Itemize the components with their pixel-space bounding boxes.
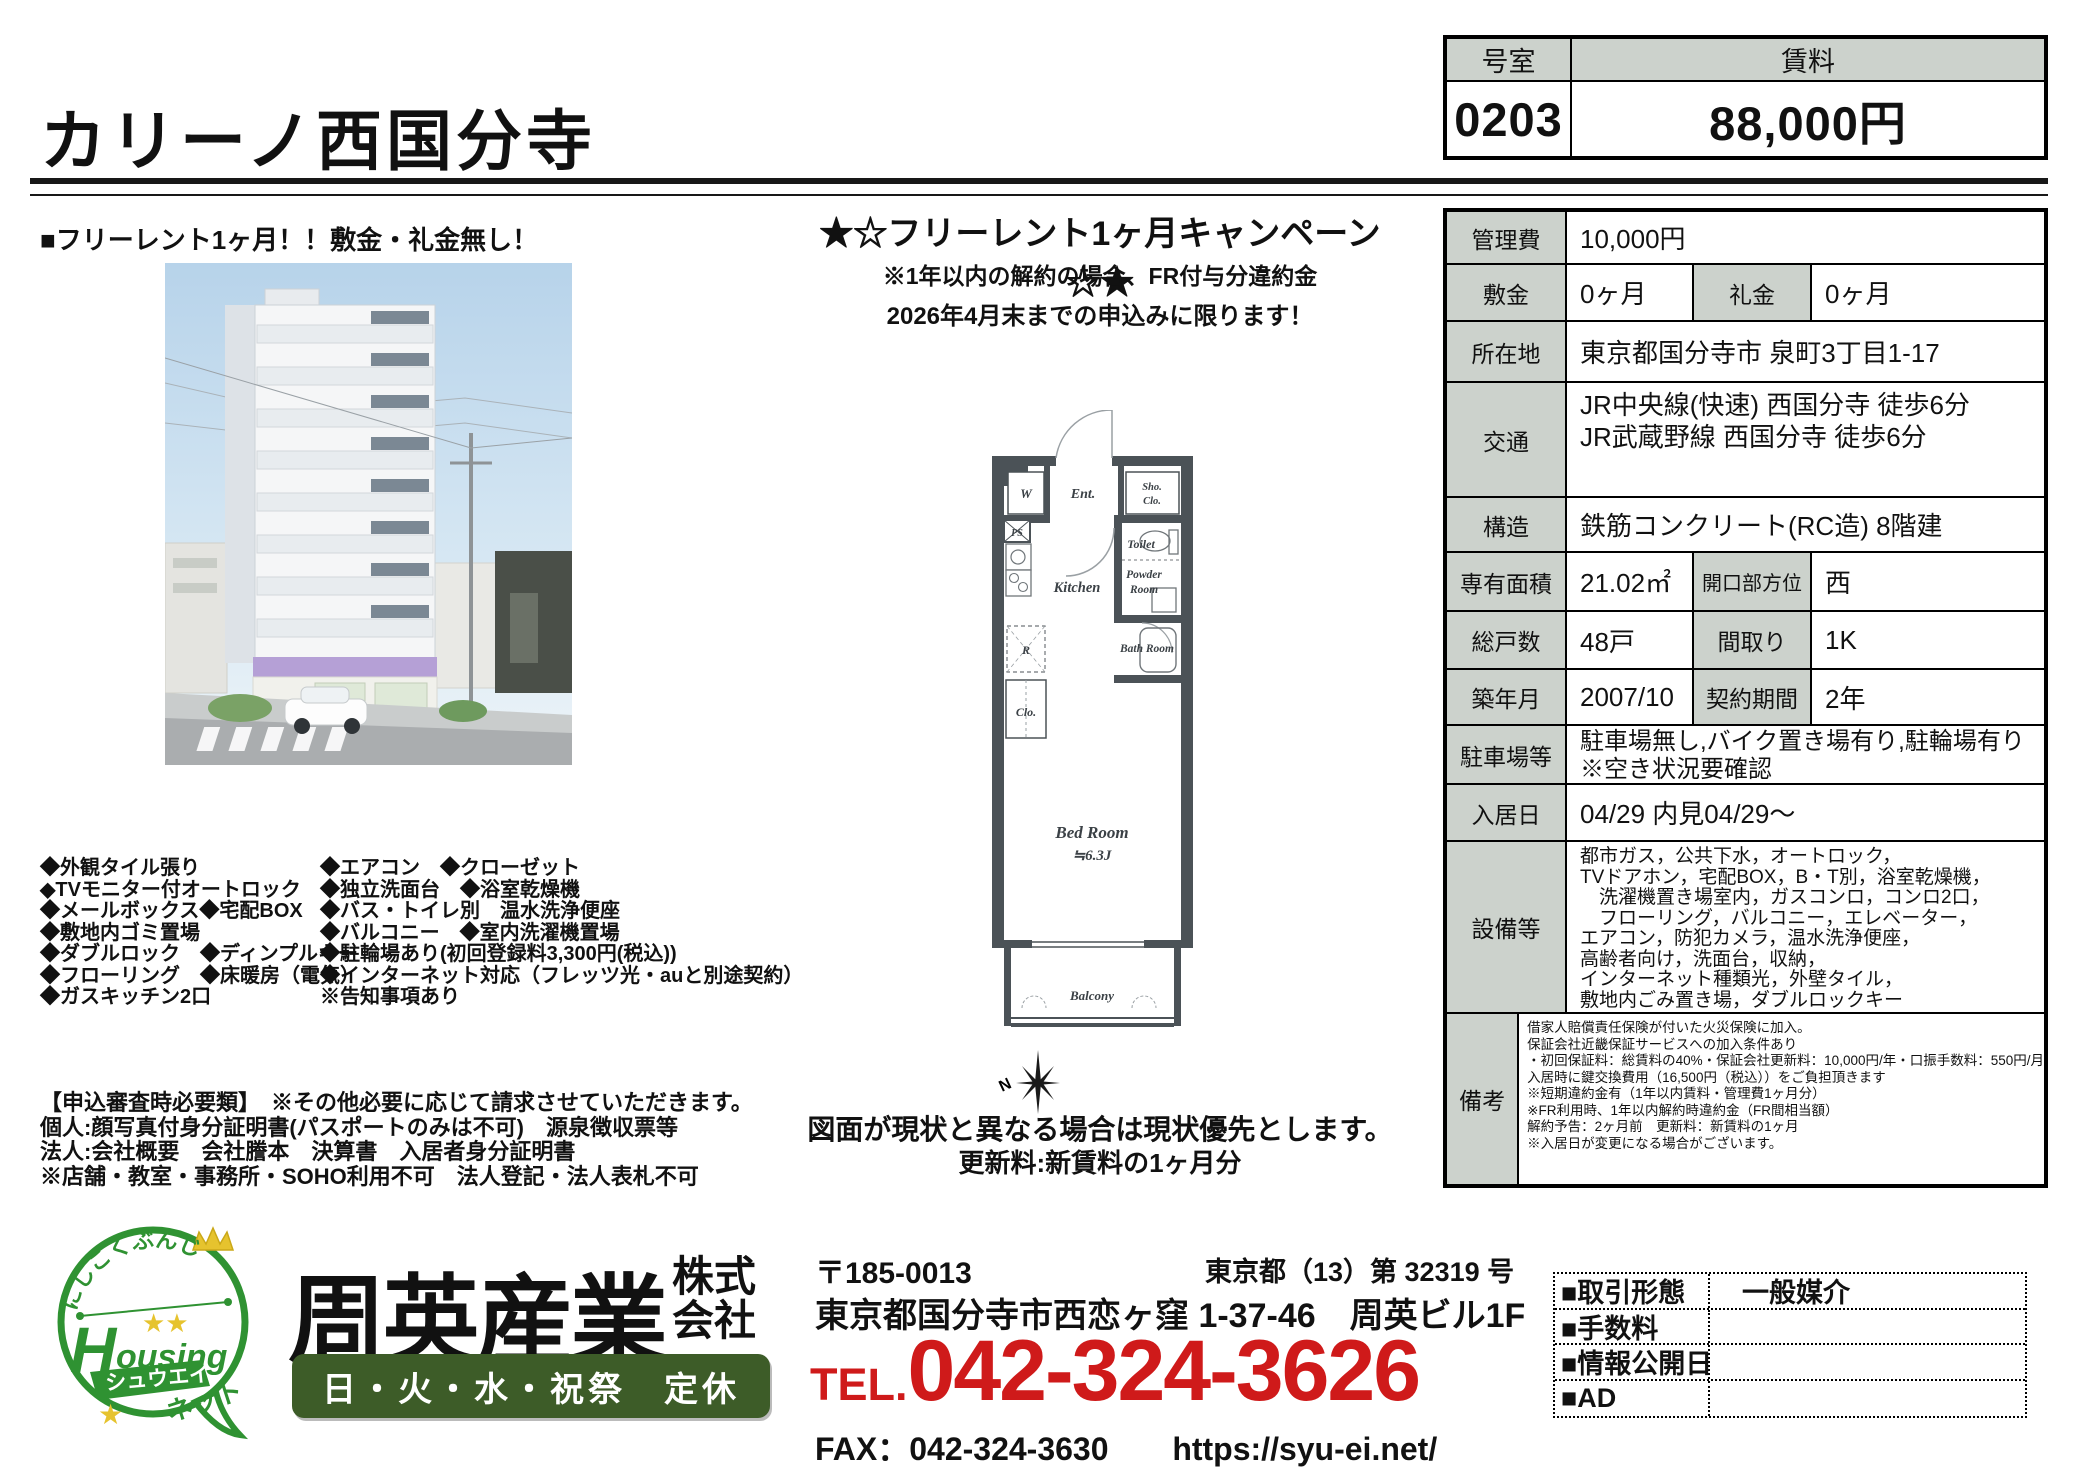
deposit-value: 0ヶ月 [1567,265,1692,320]
row-built-contract: 築年月 2007/10 契約期間 2年 [1447,670,2044,726]
location-label: 所在地 [1447,322,1567,381]
commission-value [1710,1310,2025,1344]
facing-value: 西 [1812,553,2044,610]
plan-label-shoclo-2: Clo. [1143,496,1161,507]
key-money-label: 礼金 [1692,265,1812,320]
remarks-value: 借家人賠償責任保険が付いた火災保険に加入。 保証会社近畿保証サービスへの加入条件… [1519,1014,2044,1184]
feature-item: ◆外観タイル張り [40,858,360,880]
feature-list-col2: ◆エアコン ◆クローゼット ◆独立洗面台 ◆浴室乾燥機 ◆バス・トイレ別 温水洗… [320,858,803,1009]
campaign-note-1: ※1年以内の解約の場合、FR付与分違約金 [790,257,1410,291]
fax-row: FAX：042-324-3630 https://syu-ei.net/ [815,1424,1437,1470]
plan-label-shoclo-1: Sho. [1142,482,1162,493]
closed-days-banner: 日・火・水・祝祭 定休 [292,1354,770,1418]
tel-label: TEL. [810,1359,908,1411]
equipment-label: 設備等 [1447,842,1567,1012]
equipment-line: 敷地内ごみ置き場，ダブルロックキー [1580,991,2044,1012]
application-notes: 【申込審査時必要類】 ※その他必要に応じて請求させていただきます。 個人:顔写真… [40,1091,753,1189]
ad-value [1710,1381,2025,1417]
transit-value: JR中央線(快速) 西国分寺 徒歩6分 JR武蔵野線 西国分寺 徒歩6分 [1567,383,2044,496]
plan-label-size: ≒6.3J [1073,848,1112,864]
deal-row-commission: ■手数料 [1555,1310,2025,1346]
rent-value: 88,000円 [1572,82,2044,156]
feature-item: ◆TVモニター付オートロック [40,880,360,902]
price-table-values: 0203 88,000円 [1447,82,2044,156]
phone-row: TEL. 042-324-3626 [810,1322,1419,1421]
remarks-line: ※短期違約金有（1年以内賃料・管理費1ヶ月分） [1527,1086,2044,1103]
license-number: 東京都（13）第 32319 号 [1205,1250,1514,1289]
remarks-line: 借家人賠償責任保険が付いた火災保険に加入。 [1527,1020,2044,1037]
row-structure: 構造 鉄筋コンクリート(RC造) 8階建 [1447,498,2044,553]
compass-n-label: N [997,1075,1015,1095]
renewal-fee-note: 更新料:新賃料の1ヶ月分 [780,1143,1420,1180]
parking-label: 駐車場等 [1447,726,1567,783]
feature-item: ◆メールボックス◆宅配BOX [40,901,360,923]
price-table-header: 号室 賃料 [1447,39,2044,82]
application-note-line: ※店舗・教室・事務所・SOHO利用不可 法人登記・法人表札不可 [40,1165,753,1190]
move-in-value: 04/29 内見04/29～ [1567,785,2044,840]
deal-row-publish-date: ■情報公開日 [1555,1345,2025,1381]
page-title: カリーノ西国分寺 [40,88,596,184]
row-location: 所在地 東京都国分寺市 泉町3丁目1-17 [1447,322,2044,383]
company-suffix: 株式 会社 [672,1255,756,1343]
plan-label-r: R [1021,643,1030,657]
feature-item: ◆駐輪場あり(初回登録料3,300円(税込)) [320,944,803,966]
structure-value: 鉄筋コンクリート(RC造) 8階建 [1567,498,2044,551]
plan-label-clo: Clo. [1016,705,1036,719]
remarks-line: 解約予告：2ヶ月前 更新料：新賃料の1ヶ月 [1527,1119,2044,1136]
title-divider [30,178,2048,196]
equipment-line: 洗濯機置き場室内，ガスコンロ，コンロ2口， [1580,888,2044,909]
row-deposit-key-money: 敷金 0ヶ月 礼金 0ヶ月 [1447,265,2044,322]
remarks-line: 入居時に鍵交換費用（16,500円（税込））をご負担頂きます [1527,1070,2044,1087]
parking-value: 駐車場無し,バイク置き場有り,駐輪場有り ※空き状況要確認 [1567,726,2044,783]
feature-item: ◆ダブルロック ◆ディンプルキー [40,944,360,966]
facing-label: 開口部方位 [1692,553,1812,610]
deal-info-table: ■取引形態 一般媒介 ■手数料 ■情報公開日 ■AD [1553,1272,2027,1418]
deal-row-ad: ■AD [1555,1381,2025,1417]
application-note-line: 個人:顔写真付身分証明書(パスポートのみは不可) 源泉徴収票等 [40,1116,753,1141]
remarks-line: 保証会社近畿保証サービスへの加入条件あり [1527,1037,2044,1054]
feature-item: ※告知事項あり [320,987,803,1009]
plan-label-ent: Ent. [1070,487,1096,502]
row-transit: 交通 JR中央線(快速) 西国分寺 徒歩6分 JR武蔵野線 西国分寺 徒歩6分 [1447,383,2044,498]
transaction-type-value: 一般媒介 [1710,1274,2025,1308]
feature-item: ◆ガスキッチン2口 [40,987,360,1009]
built-date-label: 築年月 [1447,670,1567,724]
plan-label-bath: Bath Room [1119,643,1174,655]
campaign-note-2: 2026年4月末までの申込みに限ります！ [790,296,1410,331]
equipment-line: 都市ガス，公共下水，オートロック， [1580,847,2044,868]
price-table: 号室 賃料 0203 88,000円 [1443,35,2048,160]
website-url: https://syu-ei.net/ [1172,1431,1437,1467]
company-suffix-line-2: 会社 [672,1299,756,1343]
management-fee-label: 管理費 [1447,212,1567,263]
room-number-value: 0203 [1447,82,1572,156]
layout-label: 間取り [1692,612,1812,668]
total-units-label: 総戸数 [1447,612,1567,668]
feature-item: ◆エアコン ◆クローゼット [320,858,803,880]
row-area-facing: 専有面積 21.02㎡ 開口部方位 西 [1447,553,2044,612]
structure-label: 構造 [1447,498,1567,551]
plan-disclaimer: 図面が現状と異なる場合は現状優先とします。 [780,1108,1420,1148]
fax-number: FAX：042-324-3630 [815,1431,1109,1467]
layout-value: 1K [1812,612,2044,668]
publish-date-label: ■情報公開日 [1555,1345,1710,1379]
management-fee-value: 10,000円 [1567,212,2044,263]
equipment-line: インターネット種類光，外壁タイル， [1580,970,2044,991]
plan-label-powder-2: Room [1129,584,1158,596]
row-management-fee: 管理費 10,000円 [1447,212,2044,265]
tel-number: 042-324-3626 [908,1322,1420,1421]
row-move-in: 入居日 04/29 内見04/29～ [1447,785,2044,842]
publish-date-value [1710,1345,2025,1379]
location-value: 東京都国分寺市 泉町3丁目1-17 [1567,322,2044,381]
row-remarks: 備考 借家人賠償責任保険が付いた火災保険に加入。 保証会社近畿保証サービスへの加… [1447,1014,2044,1184]
rent-header: 賃料 [1572,39,2044,80]
remarks-line: ・初回保証料：総賃料の40%・保証会社更新料：10,000円/年・口振手数料：5… [1527,1053,2044,1070]
plan-label-w: W [1020,486,1033,501]
equipment-line: エアコン，防犯カメラ，温水洗浄便座， [1580,929,2044,950]
logo-stars-top: ★★ [142,1308,189,1338]
transit-line-2: JR武蔵野線 西国分寺 徒歩6分 [1580,421,2044,453]
feature-item: ◆フローリング ◆床暖房（電気） [40,966,360,988]
built-date-value: 2007/10 [1567,670,1692,724]
ad-label: ■AD [1555,1381,1710,1417]
transit-label: 交通 [1447,383,1567,496]
property-details-table: 管理費 10,000円 敷金 0ヶ月 礼金 0ヶ月 所在地 東京都国分寺市 泉町… [1443,208,2048,1188]
room-number-header: 号室 [1447,39,1572,80]
contract-term-label: 契約期間 [1692,670,1812,724]
equipment-line: TVドアホン，宅配BOX，B・T別，浴室乾燥機， [1580,868,2044,889]
remarks-line: ※FR利用時、1年以内解約時違約金（FR間相当額） [1527,1103,2044,1120]
key-money-value: 0ヶ月 [1812,265,2044,320]
remarks-line: ※入居日が変更になる場合がございます。 [1527,1136,2044,1153]
plan-label-ps: PS [1011,528,1023,539]
transit-line-1: JR中央線(快速) 西国分寺 徒歩6分 [1580,389,2044,421]
building-photo-illustration [165,263,572,765]
feature-list-col1: ◆外観タイル張り ◆TVモニター付オートロック ◆メールボックス◆宅配BOX ◆… [40,858,360,1009]
feature-item: ◆バス・トイレ別 温水洗浄便座 [320,901,803,923]
application-note-line: 法人:会社概要 会社謄本 決算書 入居者身分証明書 [40,1140,753,1165]
equipment-line: 高齢者向け，洗面台，収納， [1580,950,2044,971]
area-label: 専有面積 [1447,553,1567,610]
plan-label-powder-1: Powder [1126,569,1162,581]
total-units-value: 48戸 [1567,612,1692,668]
plan-label-bedroom: Bed Room [1054,823,1128,842]
transaction-type-label: ■取引形態 [1555,1274,1710,1308]
move-in-label: 入居日 [1447,785,1567,840]
floor-plan: W Ent. Sho. Clo. PS Kitchen Toilet Powde… [992,410,1193,1042]
company-logo: にしこくぶんじ H ousing ★★ シュウエイ ★ ネット [50,1220,265,1440]
plan-label-kitchen: Kitchen [1053,580,1101,596]
plan-label-toilet: Toilet [1127,537,1155,551]
feature-item: ◆バルコニー ◆室内洗濯機置場 [320,923,803,945]
commission-label: ■手数料 [1555,1310,1710,1344]
application-note-line: 【申込審査時必要類】 ※その他必要に応じて請求させていただきます。 [40,1091,753,1116]
deposit-label: 敷金 [1447,265,1567,320]
equipment-line: フローリング，バルコニー，エレベーター， [1580,909,2044,930]
row-parking: 駐車場等 駐車場無し,バイク置き場有り,駐輪場有り ※空き状況要確認 [1447,726,2044,785]
catch-copy: ■フリーレント1ヶ月！！敷金・礼金無し！ [40,220,538,257]
row-equipment: 設備等 都市ガス，公共下水，オートロック， TVドアホン，宅配BOX，B・T別，… [1447,842,2044,1014]
feature-item: ◆敷地内ゴミ置場 [40,923,360,945]
plan-label-balcony: Balcony [1069,988,1114,1003]
area-value: 21.02㎡ [1567,553,1692,610]
company-suffix-line-1: 株式 [672,1255,756,1299]
deal-row-transaction-type: ■取引形態 一般媒介 [1555,1274,2025,1310]
row-units-layout: 総戸数 48戸 間取り 1K [1447,612,2044,670]
postal-code: 〒185-0013 [815,1248,972,1292]
equipment-value: 都市ガス，公共下水，オートロック， TVドアホン，宅配BOX，B・T別，浴室乾燥… [1567,842,2044,1012]
feature-item: ◆インターネット対応（フレッツ光・auと別途契約） [320,966,803,988]
remarks-label: 備考 [1447,1014,1519,1184]
logo-star-bottom: ★ [98,1399,123,1430]
contract-term-value: 2年 [1812,670,2044,724]
feature-item: ◆独立洗面台 ◆浴室乾燥機 [320,880,803,902]
